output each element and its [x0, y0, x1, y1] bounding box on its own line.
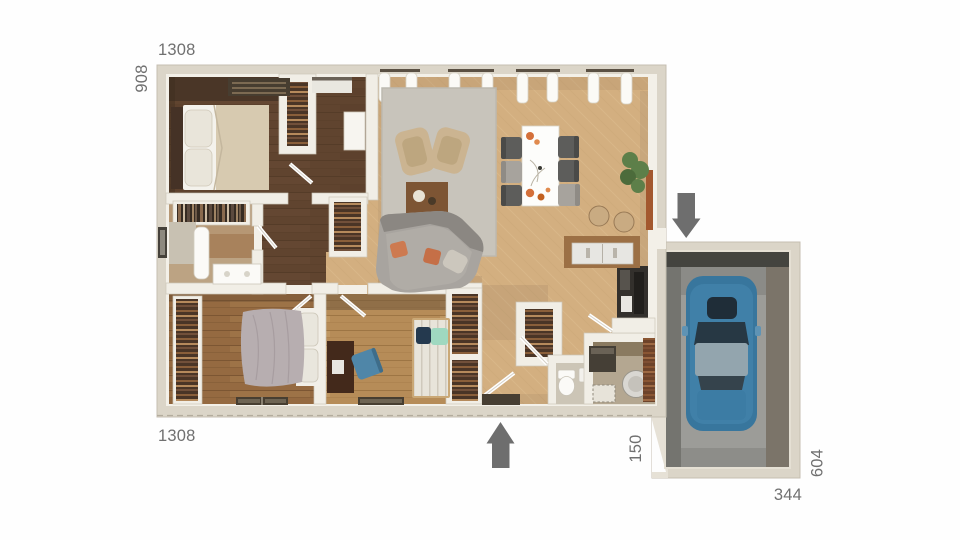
svg-text:908: 908	[133, 64, 151, 92]
svg-text:604: 604	[809, 449, 827, 477]
svg-text:1308: 1308	[158, 427, 196, 445]
svg-text:344: 344	[774, 486, 802, 504]
svg-text:1308: 1308	[158, 41, 196, 59]
svg-text:150: 150	[627, 434, 645, 462]
